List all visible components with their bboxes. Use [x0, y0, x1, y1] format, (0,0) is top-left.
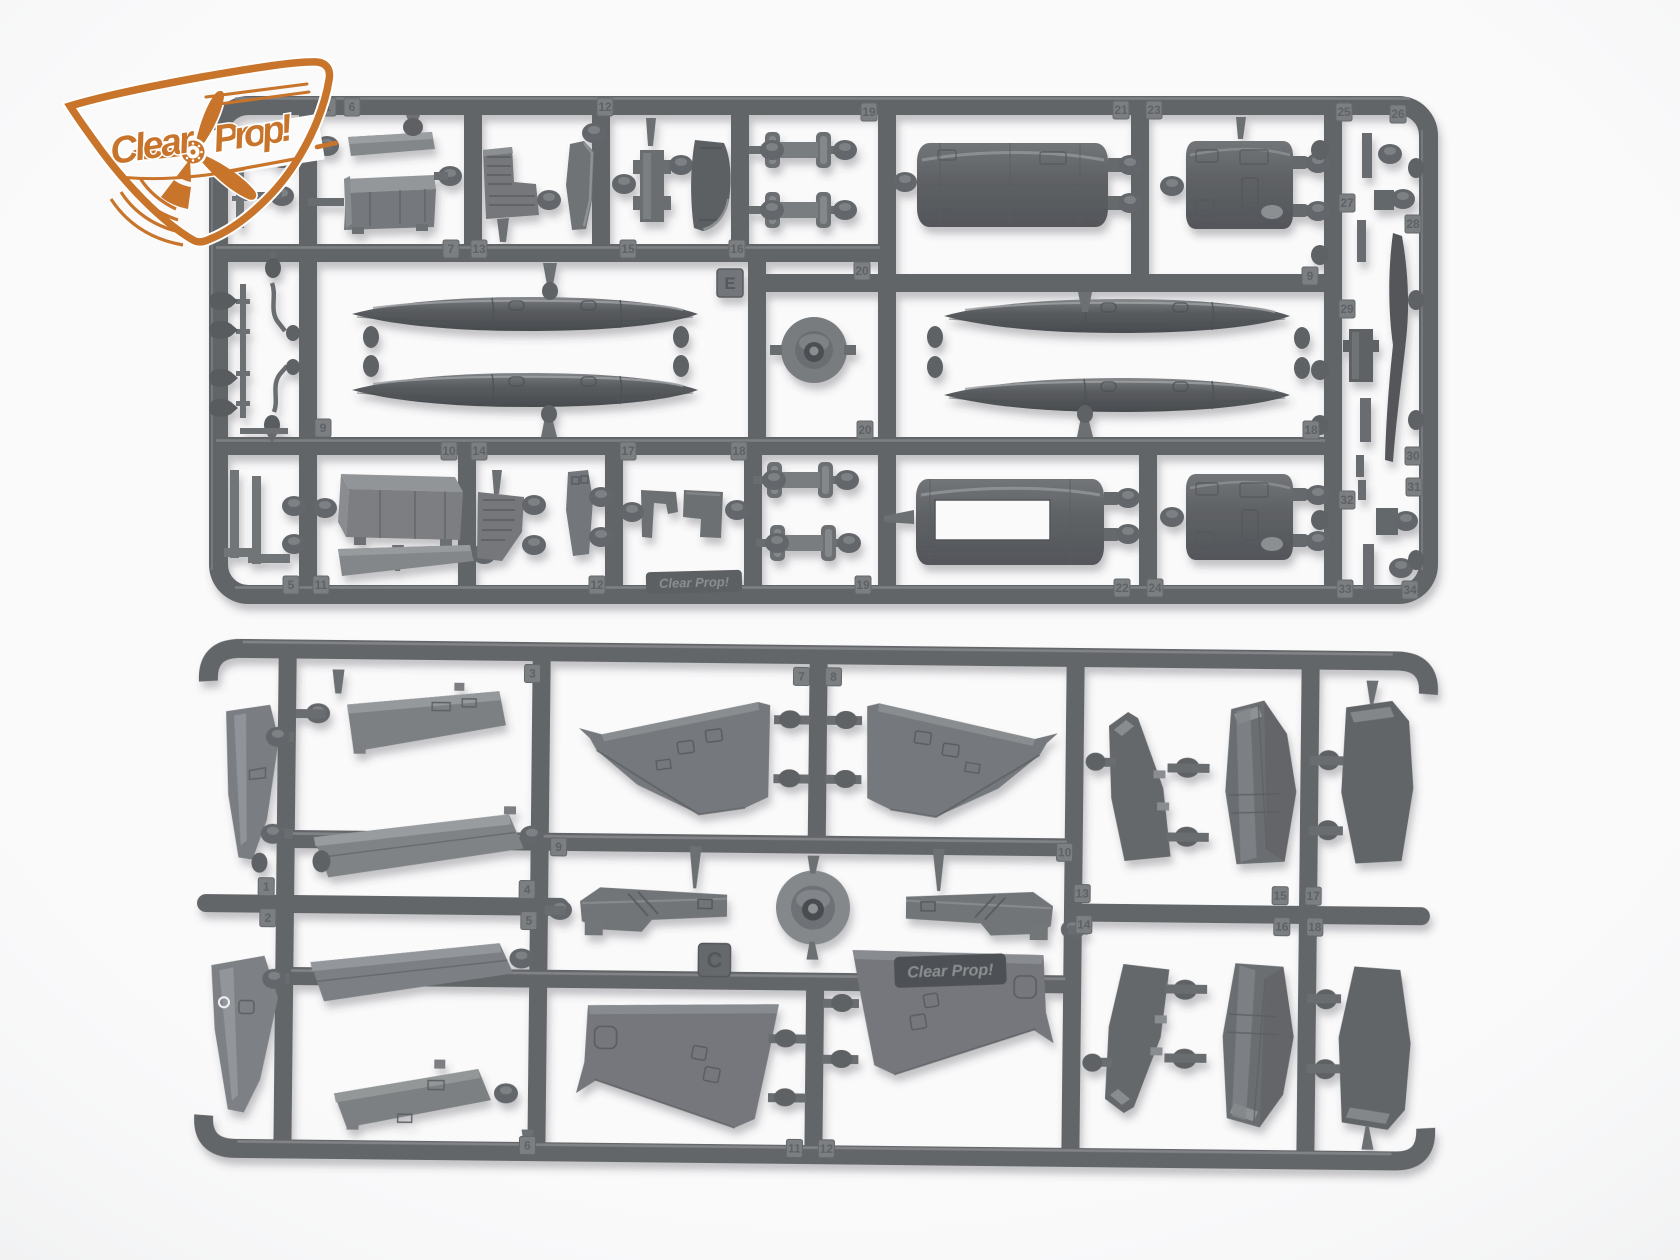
svg-text:24: 24: [1148, 581, 1162, 595]
svg-text:7: 7: [448, 242, 455, 256]
svg-text:8: 8: [830, 670, 837, 684]
svg-text:2: 2: [264, 911, 271, 925]
svg-text:9: 9: [555, 840, 562, 854]
svg-text:5: 5: [288, 578, 295, 592]
svg-text:29: 29: [1340, 302, 1354, 316]
svg-text:13: 13: [472, 242, 486, 256]
svg-text:Clear Prop!: Clear Prop!: [907, 962, 994, 982]
svg-text:33: 33: [1338, 582, 1352, 596]
svg-text:18: 18: [1308, 920, 1322, 934]
svg-text:19: 19: [856, 578, 870, 592]
svg-text:10: 10: [1058, 845, 1072, 859]
svg-text:12: 12: [598, 100, 612, 114]
svg-text:6: 6: [524, 1139, 531, 1153]
svg-text:9: 9: [320, 421, 327, 435]
svg-text:16: 16: [1275, 920, 1289, 934]
svg-text:20: 20: [855, 264, 869, 278]
svg-text:6: 6: [349, 100, 356, 114]
svg-text:3: 3: [529, 667, 536, 681]
svg-text:19: 19: [862, 105, 876, 119]
svg-text:5: 5: [525, 914, 532, 928]
svg-text:E: E: [724, 274, 735, 293]
svg-text:17: 17: [621, 444, 635, 458]
svg-text:C: C: [706, 947, 722, 972]
svg-text:11: 11: [788, 1141, 801, 1155]
svg-text:34: 34: [1403, 583, 1417, 597]
svg-text:20: 20: [858, 423, 872, 437]
svg-text:10: 10: [442, 444, 456, 458]
svg-text:28: 28: [1406, 217, 1420, 231]
svg-text:32: 32: [1340, 493, 1354, 507]
svg-text:15: 15: [621, 242, 635, 256]
svg-text:27: 27: [1340, 196, 1354, 210]
svg-text:16: 16: [730, 242, 744, 256]
svg-text:14: 14: [472, 444, 486, 458]
svg-text:4: 4: [524, 883, 531, 897]
svg-text:18: 18: [732, 444, 746, 458]
svg-text:12: 12: [590, 578, 604, 592]
svg-text:15: 15: [1273, 889, 1287, 903]
svg-text:22: 22: [1115, 581, 1129, 595]
svg-text:21: 21: [1114, 103, 1128, 117]
svg-text:11: 11: [315, 578, 328, 592]
svg-text:23: 23: [1147, 103, 1161, 117]
svg-text:26: 26: [1391, 107, 1405, 121]
svg-text:1: 1: [263, 880, 270, 894]
svg-text:14: 14: [1077, 917, 1091, 931]
svg-text:31: 31: [1407, 480, 1421, 494]
svg-text:18: 18: [1304, 423, 1318, 437]
svg-text:17: 17: [1306, 889, 1320, 903]
svg-text:25: 25: [1337, 105, 1351, 119]
svg-text:30: 30: [1406, 449, 1420, 463]
svg-text:13: 13: [1075, 886, 1089, 900]
svg-text:7: 7: [798, 669, 805, 683]
svg-text:9: 9: [1307, 269, 1314, 283]
svg-text:12: 12: [820, 1142, 834, 1156]
svg-text:Clear Prop!: Clear Prop!: [659, 574, 730, 591]
